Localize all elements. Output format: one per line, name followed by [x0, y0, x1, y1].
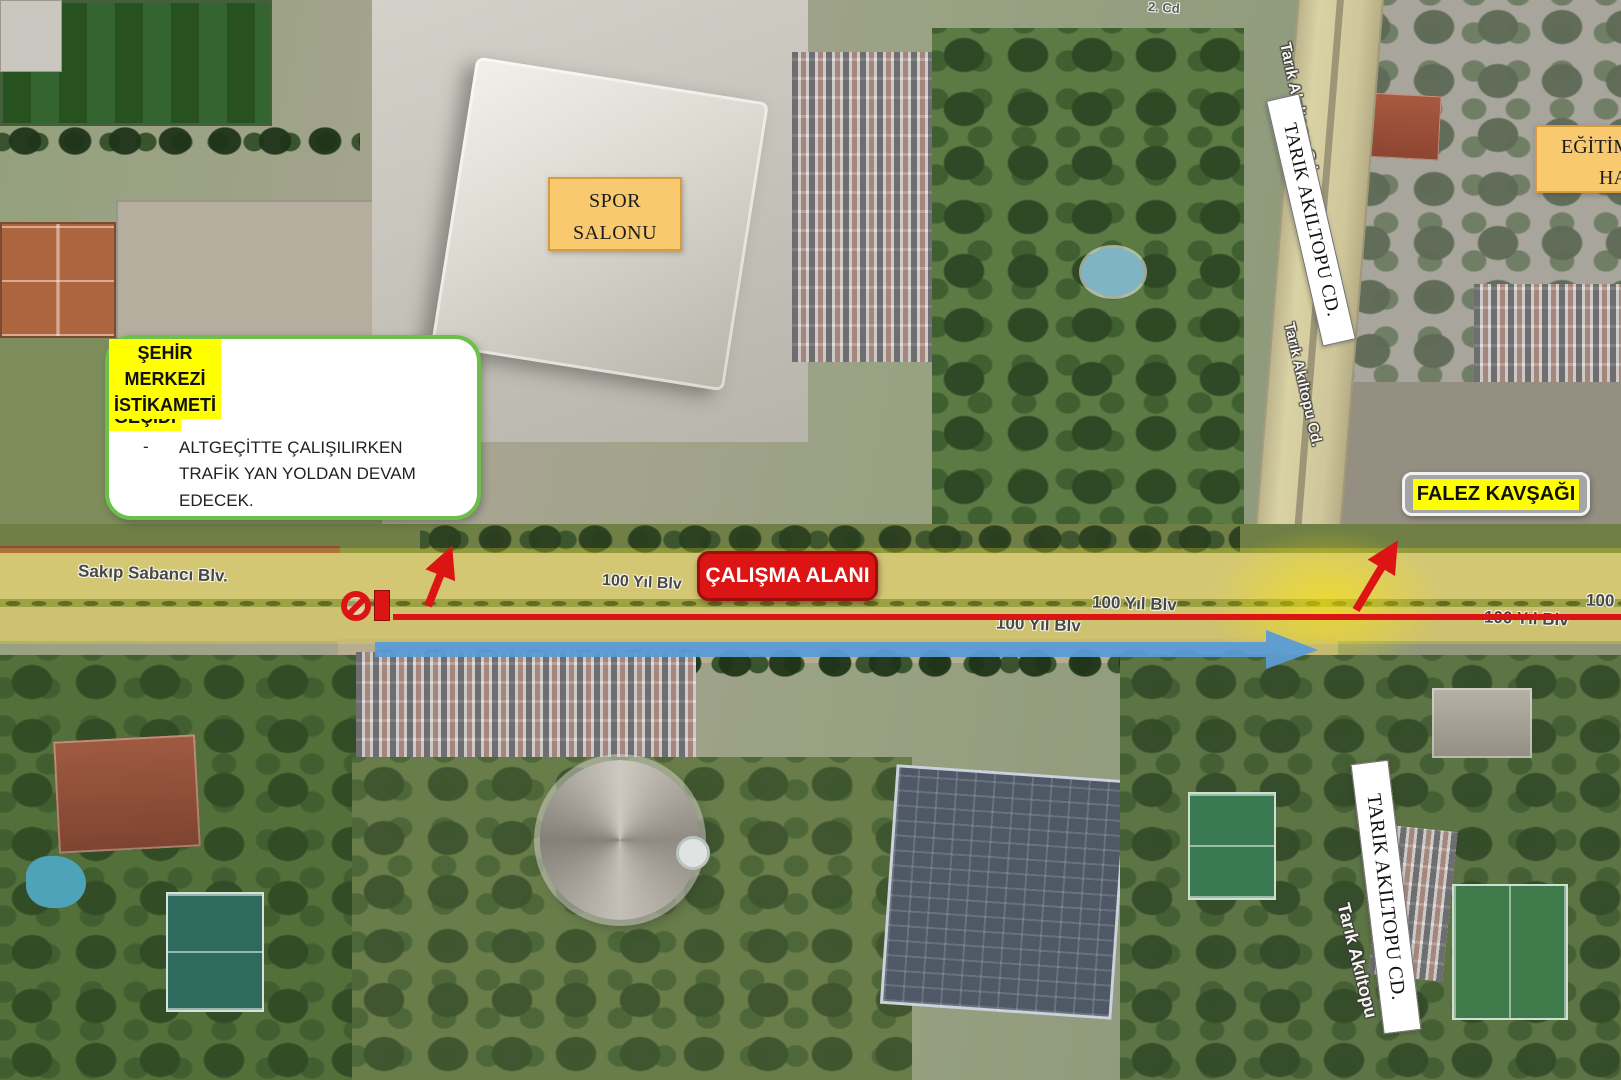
street-label-100yil-partial: 100 [1586, 591, 1615, 612]
spor-salonu-line2: SALONU [550, 217, 680, 249]
fountain [676, 836, 710, 870]
resort-pool [26, 856, 86, 908]
tennis-courts-right-1 [1188, 792, 1276, 900]
spor-salonu-line1: SPOR [550, 185, 680, 217]
falez-kavsagi-label: FALEZ KAVŞAĞI [1402, 472, 1590, 516]
building-topleft [0, 0, 62, 72]
callout-bullet-text: ALTGEÇİTTE ÇALIŞILIRKEN TRAFİK YAN YOLDA… [179, 435, 431, 514]
parking-lot-east [792, 52, 932, 362]
egitim-line2: HA [1537, 163, 1621, 194]
callout-bullet-marker: - [143, 437, 149, 457]
street-label-2cd: 2. Cd [1148, 0, 1181, 16]
street-label-100yil-2: 100 Yıl Blv [1092, 593, 1177, 616]
resort-building [53, 734, 201, 853]
tree-row-topleft [0, 118, 360, 198]
calisma-alani-text: ÇALIŞMA ALANI [705, 564, 869, 588]
tennis-courts-right-2 [1452, 884, 1568, 1020]
street-label-100yil-4: 100 Yıl Blv [1484, 608, 1569, 631]
street-label-100yil-3: 100 Yıl Blv [996, 614, 1081, 637]
park-pond [1082, 248, 1144, 296]
campus-block-left [116, 200, 376, 345]
tennis-courts-bottomleft [166, 892, 264, 1012]
spor-salonu-label: SPOR SALONU [548, 177, 682, 251]
solar-panel-building [880, 764, 1128, 1020]
calisma-alani-label: ÇALIŞMA ALANI [697, 551, 878, 601]
circular-building [540, 760, 700, 920]
falez-kavsagi-text: FALEZ KAVŞAĞI [1413, 479, 1580, 510]
no-entry-icon [341, 591, 371, 621]
closure-marker [374, 590, 390, 621]
parking-lot-bottom-center [356, 652, 696, 757]
egitim-line1: EĞİTİM [1537, 132, 1621, 163]
info-callout: FALEZ ALT GEÇİDİ ŞEHİR MERKEZİ İSTİKAMET… [105, 335, 481, 520]
building-bottomright [1432, 688, 1532, 758]
no-entry-bar-icon [346, 597, 366, 617]
clay-tennis-courts [0, 222, 116, 338]
parking-lot-topright [1474, 284, 1621, 382]
traffic-plan-map: Sakıp Sabancı Blv. 100 Yıl Blv 100 Yıl B… [0, 0, 1621, 1080]
egitim-label: EĞİTİM HA [1535, 125, 1621, 193]
